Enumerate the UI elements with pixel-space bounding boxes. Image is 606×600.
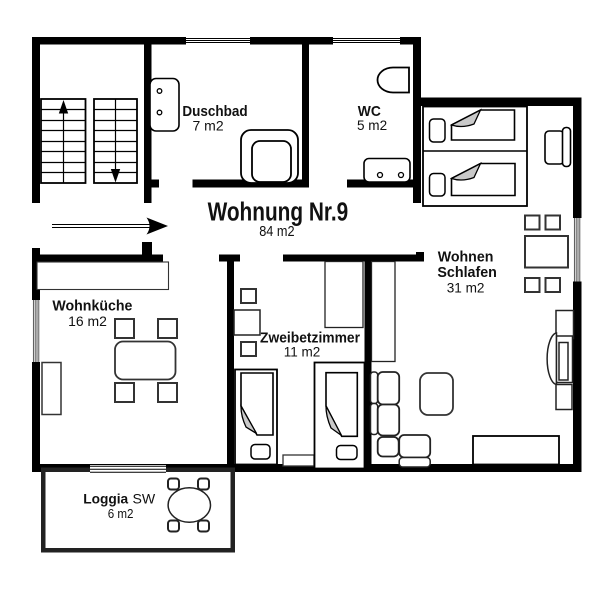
svg-text:Loggia: Loggia bbox=[83, 491, 128, 507]
svg-text:84 m2: 84 m2 bbox=[259, 223, 294, 240]
svg-text:11 m2: 11 m2 bbox=[284, 344, 321, 360]
svg-text:Wohnküche: Wohnküche bbox=[52, 298, 132, 314]
svg-text:6 m2: 6 m2 bbox=[108, 506, 134, 521]
svg-text:Wohnen: Wohnen bbox=[438, 250, 494, 266]
svg-text:7 m2: 7 m2 bbox=[193, 118, 224, 134]
svg-text:SW: SW bbox=[133, 491, 156, 507]
svg-text:31 m2: 31 m2 bbox=[447, 280, 485, 296]
svg-text:5 m2: 5 m2 bbox=[357, 117, 387, 133]
svg-text:16 m2: 16 m2 bbox=[68, 313, 107, 329]
